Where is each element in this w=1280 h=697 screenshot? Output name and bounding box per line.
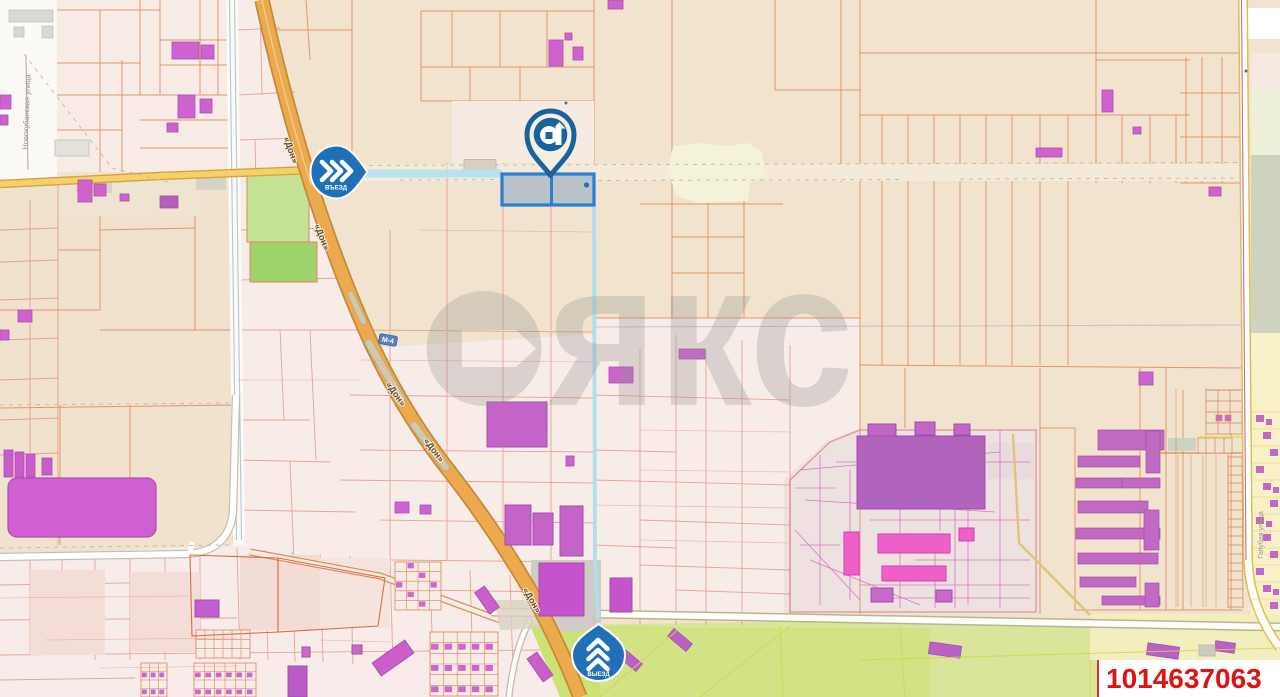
svg-text:ВЫЕЗД: ВЫЕЗД bbox=[587, 672, 610, 678]
svg-text:Голубая улица: Голубая улица bbox=[1257, 511, 1265, 559]
svg-text:якс: якс bbox=[547, 219, 854, 449]
svg-text:ВЪЕЗД: ВЪЕЗД bbox=[325, 185, 348, 192]
